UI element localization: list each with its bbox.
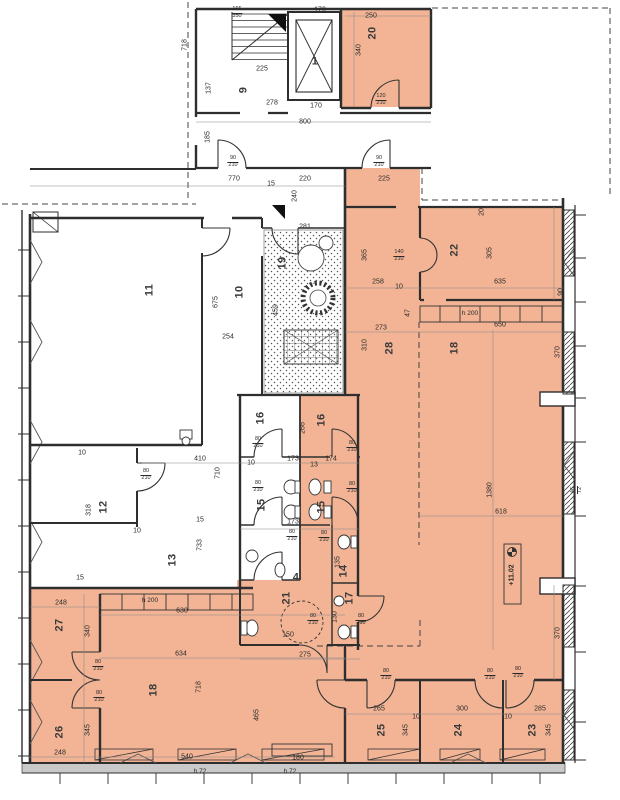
sink bbox=[334, 596, 344, 606]
atrium-floor-pattern bbox=[264, 230, 343, 393]
sink bbox=[246, 550, 258, 562]
floorplan-drawing bbox=[0, 0, 620, 800]
toilet bbox=[309, 504, 321, 520]
toilet bbox=[338, 535, 350, 549]
toilet bbox=[338, 625, 350, 639]
toilet bbox=[309, 479, 321, 495]
right-wall-piers bbox=[563, 210, 574, 760]
toilet bbox=[275, 563, 285, 577]
plant-symbol bbox=[298, 245, 324, 271]
toilet bbox=[246, 620, 258, 636]
floor-plan: 1920111019222818161615154141721121327261… bbox=[0, 0, 620, 800]
